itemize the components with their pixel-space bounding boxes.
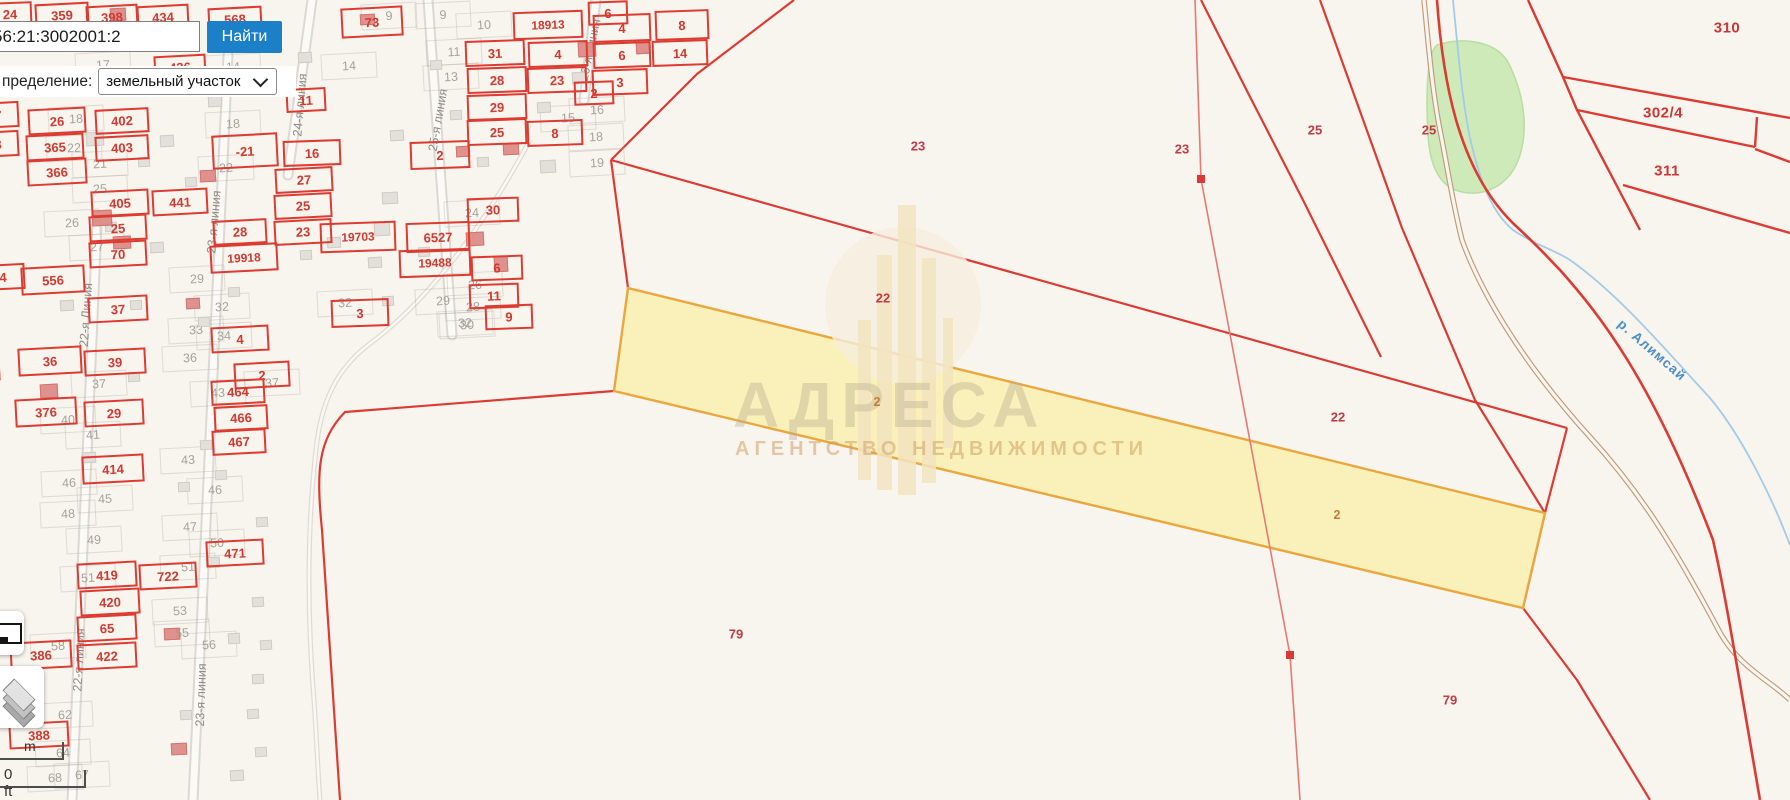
parcel-box[interactable]: 18913 [513,10,584,40]
find-button[interactable]: Найти [207,21,282,53]
parcel-box[interactable]: 26 [27,107,86,136]
area-parcel-label: 23 [911,139,925,154]
building-footprint [160,135,175,148]
parcel-box[interactable]: 2 [410,140,471,170]
parcel-box[interactable]: 36 [17,345,82,376]
building-footprint [180,710,193,721]
building-footprint [185,177,198,188]
parcel-box[interactable]: 4 [210,325,269,354]
area-parcel-label: 79 [729,627,743,642]
building-footprint [208,96,223,108]
parcel-box[interactable]: 19703 [319,221,396,254]
parcel-box[interactable]: 366 [26,157,87,186]
parcel-box[interactable]: 8 [654,9,709,41]
building-footprint [228,287,241,298]
parcel-box[interactable]: 402 [94,107,149,135]
object-type-value: земельный участок [106,73,240,90]
parcel-box[interactable]: 19918 [209,242,278,274]
parcel-box[interactable]: 8 [527,119,584,147]
parcel-box[interactable]: 29 [83,398,144,427]
lot-number: 19 [568,149,625,178]
parcel-box[interactable]: 31 [465,39,526,67]
parcel-box[interactable]: 7 [0,101,20,129]
lot-number: 10 [455,11,512,40]
parcel-box[interactable]: 471 [205,539,264,568]
building-footprint [390,130,405,142]
area-parcel-label: 22 [1331,410,1345,425]
parcel-box[interactable]: 441 [151,188,208,217]
building-footprint [60,300,75,312]
area-parcel-label: 25 [1422,123,1436,138]
parcel-box[interactable]: 419 [76,560,137,589]
parcel-box[interactable]: 722 [138,562,197,591]
building-footprint [300,250,313,261]
parcel-box[interactable]: 420 [79,587,140,616]
parcel-box[interactable]: 25 [273,192,332,220]
building-footprint [540,160,557,174]
building-footprint [198,317,211,328]
building-footprint [230,770,245,782]
building-footprint [252,597,265,608]
watermark-subtitle: АГЕНТСТВО НЕДВИЖИМОСТИ [735,438,1148,461]
building-footprint [382,192,399,205]
building-footprint [298,52,313,64]
parcel-box[interactable]: 464 [210,378,265,406]
parcel-box[interactable]: 403 [94,134,149,162]
cadastral-map-app: АДРЕСА АГЕНТСТВО НЕДВИЖИМОСТИ р. Алимсай… [0,0,1790,800]
parcel-box[interactable]: 29 [467,93,528,121]
parcel-box[interactable]: 6 [588,0,629,25]
area-parcel-label: 79 [1443,693,1457,708]
building-footprint [368,257,383,269]
layers-button[interactable] [0,666,44,728]
building-footprint [252,674,265,685]
parcel-box[interactable]: 39 [83,347,146,376]
parcel-box[interactable]: 376 [14,396,77,427]
filter-row: пределение: земельный участок [0,66,296,97]
area-parcel-label: 23 [1175,142,1189,157]
building-footprint-red [171,743,188,756]
lot-number: 49 [65,526,122,555]
parcel-box[interactable]: 6 [593,41,652,69]
building-footprint [450,110,463,121]
lot-number: 68 [26,764,83,793]
scale-ft-label: 0 ft [4,766,12,800]
minimap-icon [0,623,22,644]
building-footprint-red [164,628,181,641]
building-footprint [228,633,241,645]
parcel-box[interactable]: 14 [652,39,709,67]
lot-number: 14 [320,52,377,81]
building-footprint [256,517,269,528]
scale-m-label: m [24,738,36,754]
parcel-box[interactable]: 467 [211,428,266,456]
parcel-box[interactable]: 422 [76,641,137,670]
parcel-box[interactable]: 25 [467,118,528,146]
parcel-box[interactable]: 70 [88,240,147,269]
parcel-box[interactable]: 556 [20,264,85,295]
area-parcel-label: 2 [1334,508,1341,522]
parcel-box[interactable]: 27 [274,166,333,194]
parcel-box[interactable]: 19488 [399,248,472,278]
building-footprint [430,60,443,71]
building-footprint-red [40,384,59,399]
object-type-select[interactable]: земельный участок [98,68,277,95]
building-footprint [255,747,268,758]
building-footprint [178,482,191,493]
parcel-box[interactable]: 28 [467,66,528,94]
lot-number: 36 [161,344,218,373]
building-footprint-red [200,170,217,183]
parcel-box[interactable]: 73 [340,5,403,38]
building-footprint [150,242,165,254]
area-parcel-label: 25 [1308,123,1322,138]
parcel-box[interactable]: 3 [331,298,390,328]
parcel-box[interactable]: 30 [467,197,520,224]
area-parcel-label: 310 [1714,20,1741,37]
building-footprint [260,640,273,651]
area-parcel-label: 2 [874,395,881,409]
filter-label: пределение: [2,73,92,91]
watermark-title: АДРЕСА [733,368,1045,442]
parcel-box[interactable]: 8 [0,130,20,158]
chevron-down-icon [253,72,269,88]
parcel-box[interactable]: 2 [574,80,615,105]
minimap-button[interactable] [0,611,24,655]
parcel-box[interactable]: 9 [485,304,534,331]
building-footprint [215,470,228,481]
area-parcel-label: 302/4 [1643,105,1683,122]
street-name-label: 23-я линия [193,663,209,727]
building-footprint [477,157,490,168]
parcel-box[interactable]: 414 [81,453,144,484]
parcel-box[interactable]: 28 [212,218,267,246]
building-footprint [537,102,552,114]
parcel-box[interactable]: 6 [471,255,524,282]
building-footprint-red [186,298,201,310]
building-footprint [200,440,213,451]
parcel-box[interactable]: 65 [76,613,137,642]
area-parcel-label: 311 [1654,163,1680,180]
lot-number: 48 [39,500,96,529]
parcel-box[interactable]: 4 [528,40,589,68]
search-input[interactable] [0,21,200,52]
parcel-box[interactable]: 16 [283,139,342,167]
area-parcel-label: 22 [876,291,890,306]
parcel-box[interactable]: 25 [88,214,147,243]
parcel-box[interactable]: -21 [211,132,279,169]
parcel-box[interactable]: 37 [87,294,148,323]
building-footprint [247,709,260,720]
